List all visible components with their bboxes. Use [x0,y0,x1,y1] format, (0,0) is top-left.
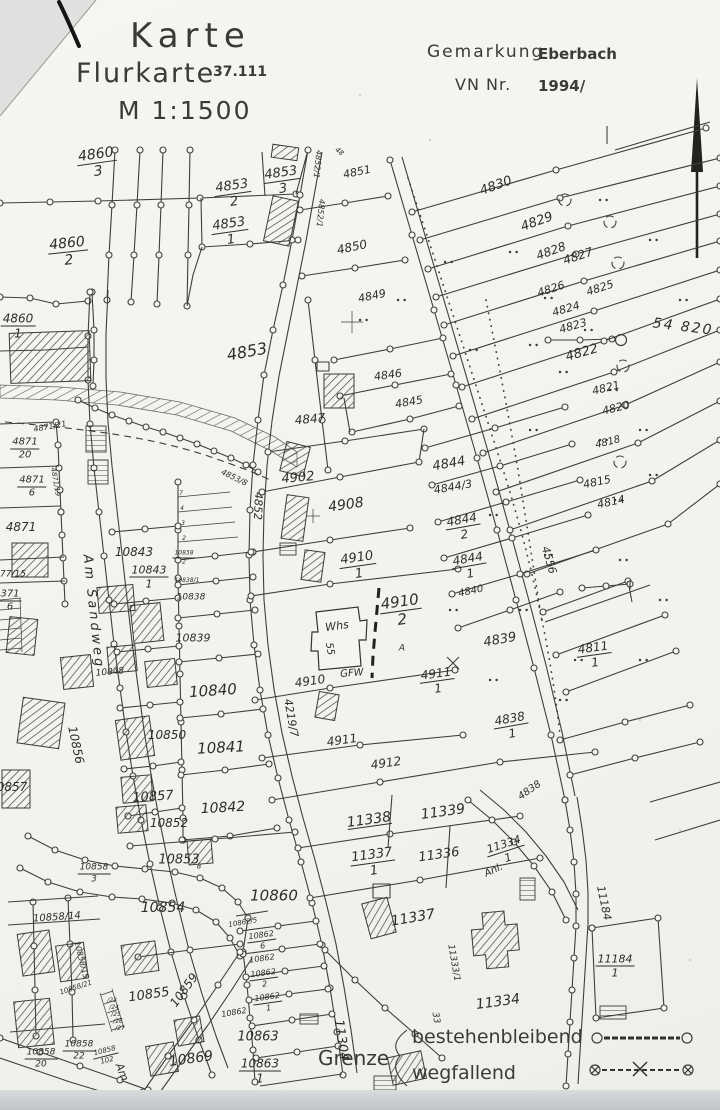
gemarkung-label: Gemarkung [427,42,544,62]
gemarkung-value: Eberbach [538,45,617,63]
scan-shadow [0,1090,720,1110]
map-linework [0,0,720,1110]
whs-house-outline [311,607,367,670]
legend-symbol-wegfallend [590,1062,693,1076]
sheet-number: 37.111 [213,64,267,80]
map-scale: M 1:1500 [118,96,251,125]
vn-value: 1994/ [538,77,585,95]
legend-item-wegfallend: wegfallend [412,1062,516,1084]
legend-symbol-bestehenbleibend [592,1033,692,1043]
map-title: Karte [130,16,251,56]
vn-label: VN Nr. [455,75,511,94]
legend-item-bestehenbleibend: bestehenbleibend [412,1026,583,1048]
map-type-label: Flurkarte [76,58,215,89]
flurkarte-scan: Karte Flurkarte 37.111 M 1:1500 Gemarkun… [0,0,720,1110]
legend-grenze-label: Grenze [318,1046,389,1070]
north-arrow-icon [691,78,703,258]
